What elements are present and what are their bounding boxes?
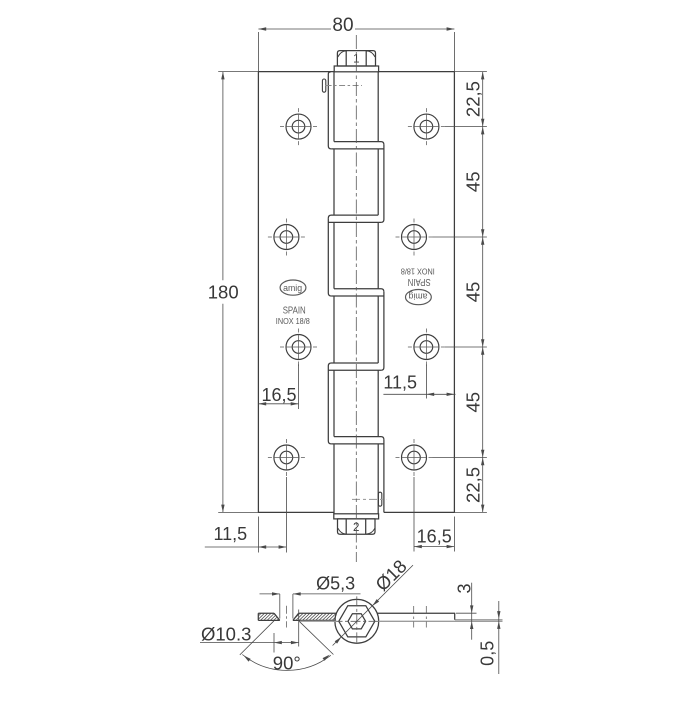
svg-text:80: 80 [332,15,353,36]
svg-text:SPAIN: SPAIN [283,306,306,317]
svg-text:180: 180 [208,282,239,303]
svg-text:0,5: 0,5 [478,641,498,666]
svg-text:3: 3 [455,583,475,593]
svg-text:45: 45 [463,282,484,303]
svg-text:INOX 18/8: INOX 18/8 [276,317,310,326]
svg-text:11,5: 11,5 [213,524,247,544]
svg-text:SPAIN: SPAIN [408,276,431,287]
svg-text:Ø5,3: Ø5,3 [316,573,355,593]
svg-text:90°: 90° [273,652,301,673]
svg-text:45: 45 [463,172,484,193]
svg-text:11,5: 11,5 [383,373,417,393]
svg-text:45: 45 [463,392,484,413]
svg-text:16,5: 16,5 [417,526,452,546]
svg-text:16,5: 16,5 [261,385,296,405]
svg-text:22,5: 22,5 [463,467,484,503]
svg-text:Ø10.3: Ø10.3 [201,624,251,645]
svg-text:22,5: 22,5 [463,81,484,117]
svg-text:INOX 18/8: INOX 18/8 [400,267,434,276]
svg-text:amig: amig [283,283,302,293]
svg-text:amig: amig [409,292,428,302]
